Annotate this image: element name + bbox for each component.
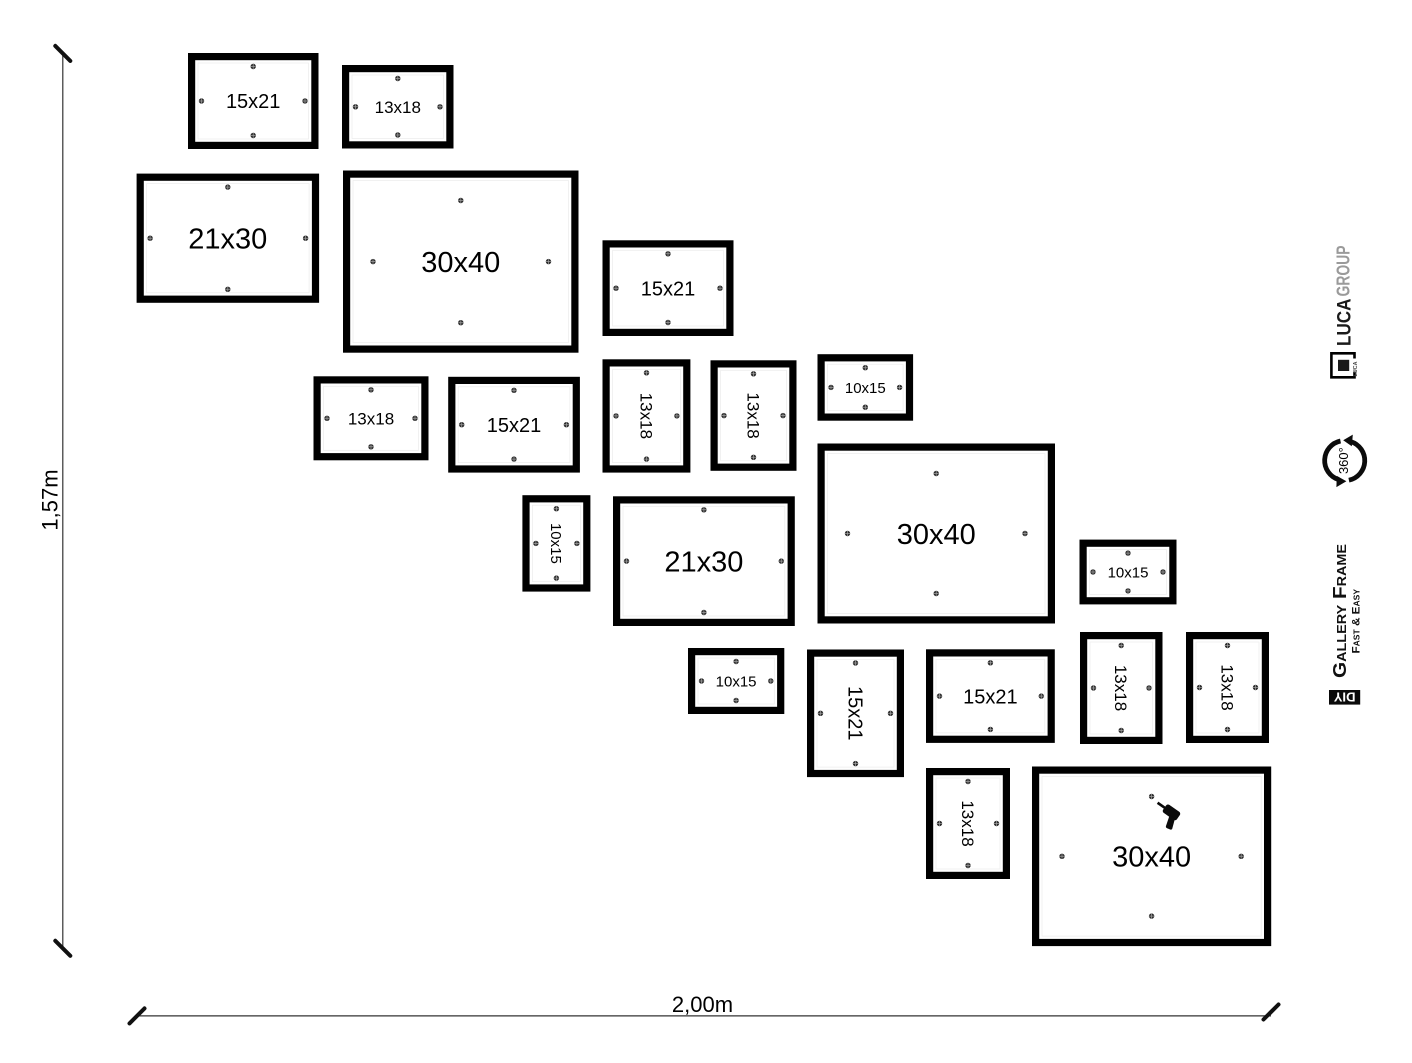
svg-text:360°: 360° xyxy=(1336,447,1351,474)
svg-text:21x30: 21x30 xyxy=(188,224,267,256)
svg-text:10x15: 10x15 xyxy=(716,673,757,690)
svg-text:13x18: 13x18 xyxy=(348,409,394,428)
svg-text:1,57m: 1,57m xyxy=(37,469,62,530)
svg-text:GROUP: GROUP xyxy=(1334,246,1354,297)
svg-text:13x18: 13x18 xyxy=(958,800,977,846)
svg-text:10x15: 10x15 xyxy=(547,523,564,564)
svg-text:30x40: 30x40 xyxy=(1112,842,1191,874)
svg-text:Gallery Frame: Gallery Frame xyxy=(1329,544,1350,678)
svg-text:13x18: 13x18 xyxy=(1111,665,1130,711)
svg-text:LUCA: LUCA xyxy=(1334,299,1356,347)
svg-text:13x18: 13x18 xyxy=(744,392,763,438)
svg-text:30x40: 30x40 xyxy=(897,519,976,551)
svg-text:LUCA: LUCA xyxy=(1353,361,1359,376)
svg-text:13x18: 13x18 xyxy=(1217,664,1236,710)
svg-text:15x21: 15x21 xyxy=(843,686,865,741)
svg-text:Fast & Easy: Fast & Easy xyxy=(1351,588,1363,653)
svg-text:15x21: 15x21 xyxy=(487,415,542,437)
svg-text:DIY: DIY xyxy=(1333,690,1355,705)
svg-text:15x21: 15x21 xyxy=(963,686,1018,708)
svg-text:21x30: 21x30 xyxy=(664,547,743,579)
svg-text:2,00m: 2,00m xyxy=(672,992,733,1017)
svg-text:30x40: 30x40 xyxy=(421,247,500,279)
svg-text:13x18: 13x18 xyxy=(636,393,655,439)
svg-text:13x18: 13x18 xyxy=(375,98,421,117)
svg-text:10x15: 10x15 xyxy=(1108,564,1149,581)
svg-text:10x15: 10x15 xyxy=(845,380,886,397)
svg-text:15x21: 15x21 xyxy=(226,91,281,113)
svg-text:15x21: 15x21 xyxy=(641,278,696,300)
